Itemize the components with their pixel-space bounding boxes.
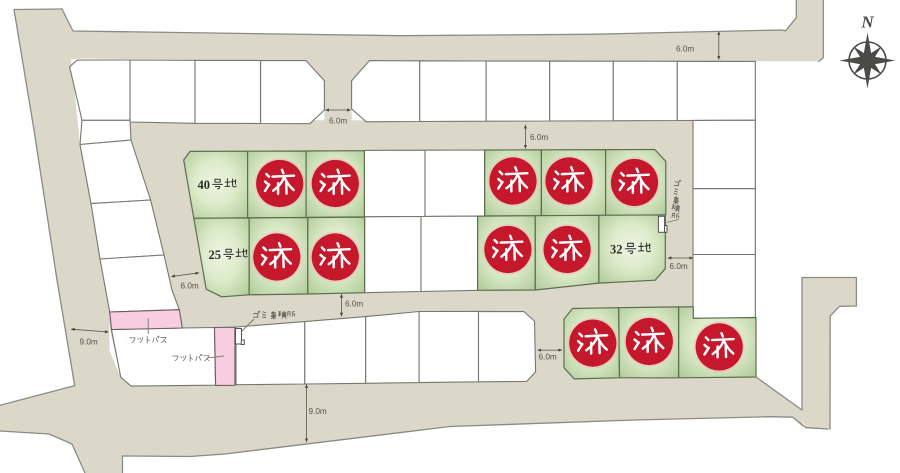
svg-text:6.0m: 6.0m [345, 300, 363, 309]
svg-text:9.0m: 9.0m [309, 407, 327, 416]
svg-text:6.0m: 6.0m [676, 45, 694, 54]
svg-text:6.0m: 6.0m [181, 282, 199, 291]
svg-text:9.0m: 9.0m [80, 338, 98, 347]
svg-text:32: 32 [610, 243, 623, 257]
svg-text:N: N [860, 13, 874, 32]
svg-text:6.0m: 6.0m [539, 353, 557, 362]
svg-text:6.0m: 6.0m [530, 133, 548, 142]
svg-text:6.0m: 6.0m [670, 262, 688, 271]
svg-text:40: 40 [198, 178, 211, 192]
svg-text:6.0m: 6.0m [329, 117, 347, 126]
svg-text:25: 25 [209, 248, 222, 262]
